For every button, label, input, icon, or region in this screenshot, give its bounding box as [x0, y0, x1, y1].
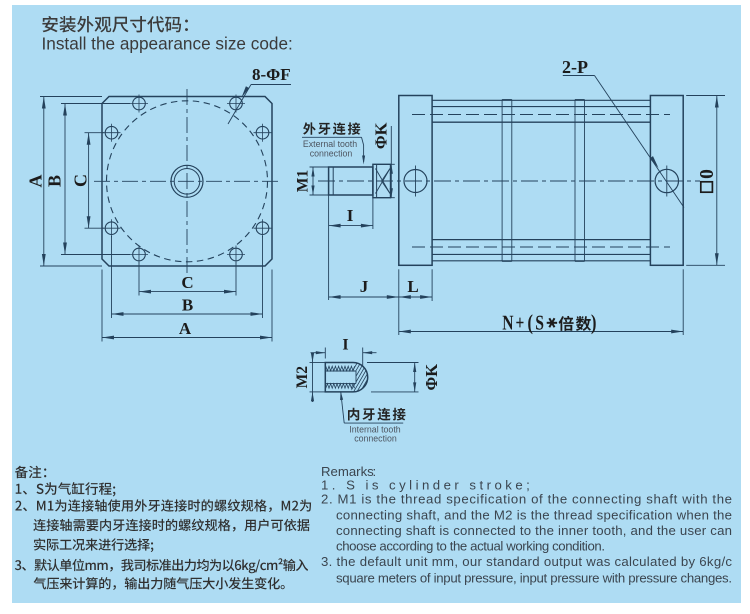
- svg-text:J: J: [360, 277, 369, 296]
- svg-text:3. the default unit mm, our st: 3. the default unit mm, our standard out…: [321, 554, 732, 569]
- svg-text:ΦK: ΦK: [422, 364, 441, 391]
- svg-text:8-ΦF: 8-ΦF: [252, 65, 291, 84]
- svg-text:Install the appearance size co: Install the appearance size code:: [42, 33, 293, 53]
- svg-text:2-P: 2-P: [562, 57, 588, 77]
- svg-text:M1: M1: [295, 170, 312, 192]
- svg-text:A: A: [26, 175, 46, 188]
- svg-text:A: A: [179, 319, 192, 338]
- svg-text:External tooth: External tooth: [303, 139, 357, 149]
- svg-text:C: C: [71, 174, 91, 187]
- svg-text:connecting shaft, and the M2 i: connecting shaft, and the M2 is the thre…: [336, 507, 732, 522]
- svg-text:I: I: [347, 206, 354, 225]
- svg-text:1. S is cylinder stroke;: 1. S is cylinder stroke;: [321, 477, 530, 492]
- svg-text:0: 0: [697, 169, 718, 179]
- svg-text:B: B: [45, 175, 65, 187]
- svg-text:connecting shaft is connected: connecting shaft is connected to the inn…: [336, 523, 732, 538]
- svg-text:M2: M2: [294, 366, 311, 389]
- svg-text:C: C: [181, 273, 193, 292]
- svg-text:B: B: [182, 296, 193, 315]
- svg-text:ΦK: ΦK: [372, 122, 391, 149]
- svg-text:2. M1 is the thread specificat: 2. M1 is the thread specification of the…: [321, 491, 732, 506]
- svg-text:choose according to the actual: choose according to the actual working c…: [336, 538, 605, 553]
- svg-text:square meters of input pressur: square meters of input pressure, input p…: [336, 570, 732, 585]
- svg-text:L: L: [407, 277, 418, 296]
- svg-text:connection: connection: [310, 149, 353, 159]
- svg-text:I: I: [342, 337, 348, 354]
- svg-text:connection: connection: [354, 434, 397, 444]
